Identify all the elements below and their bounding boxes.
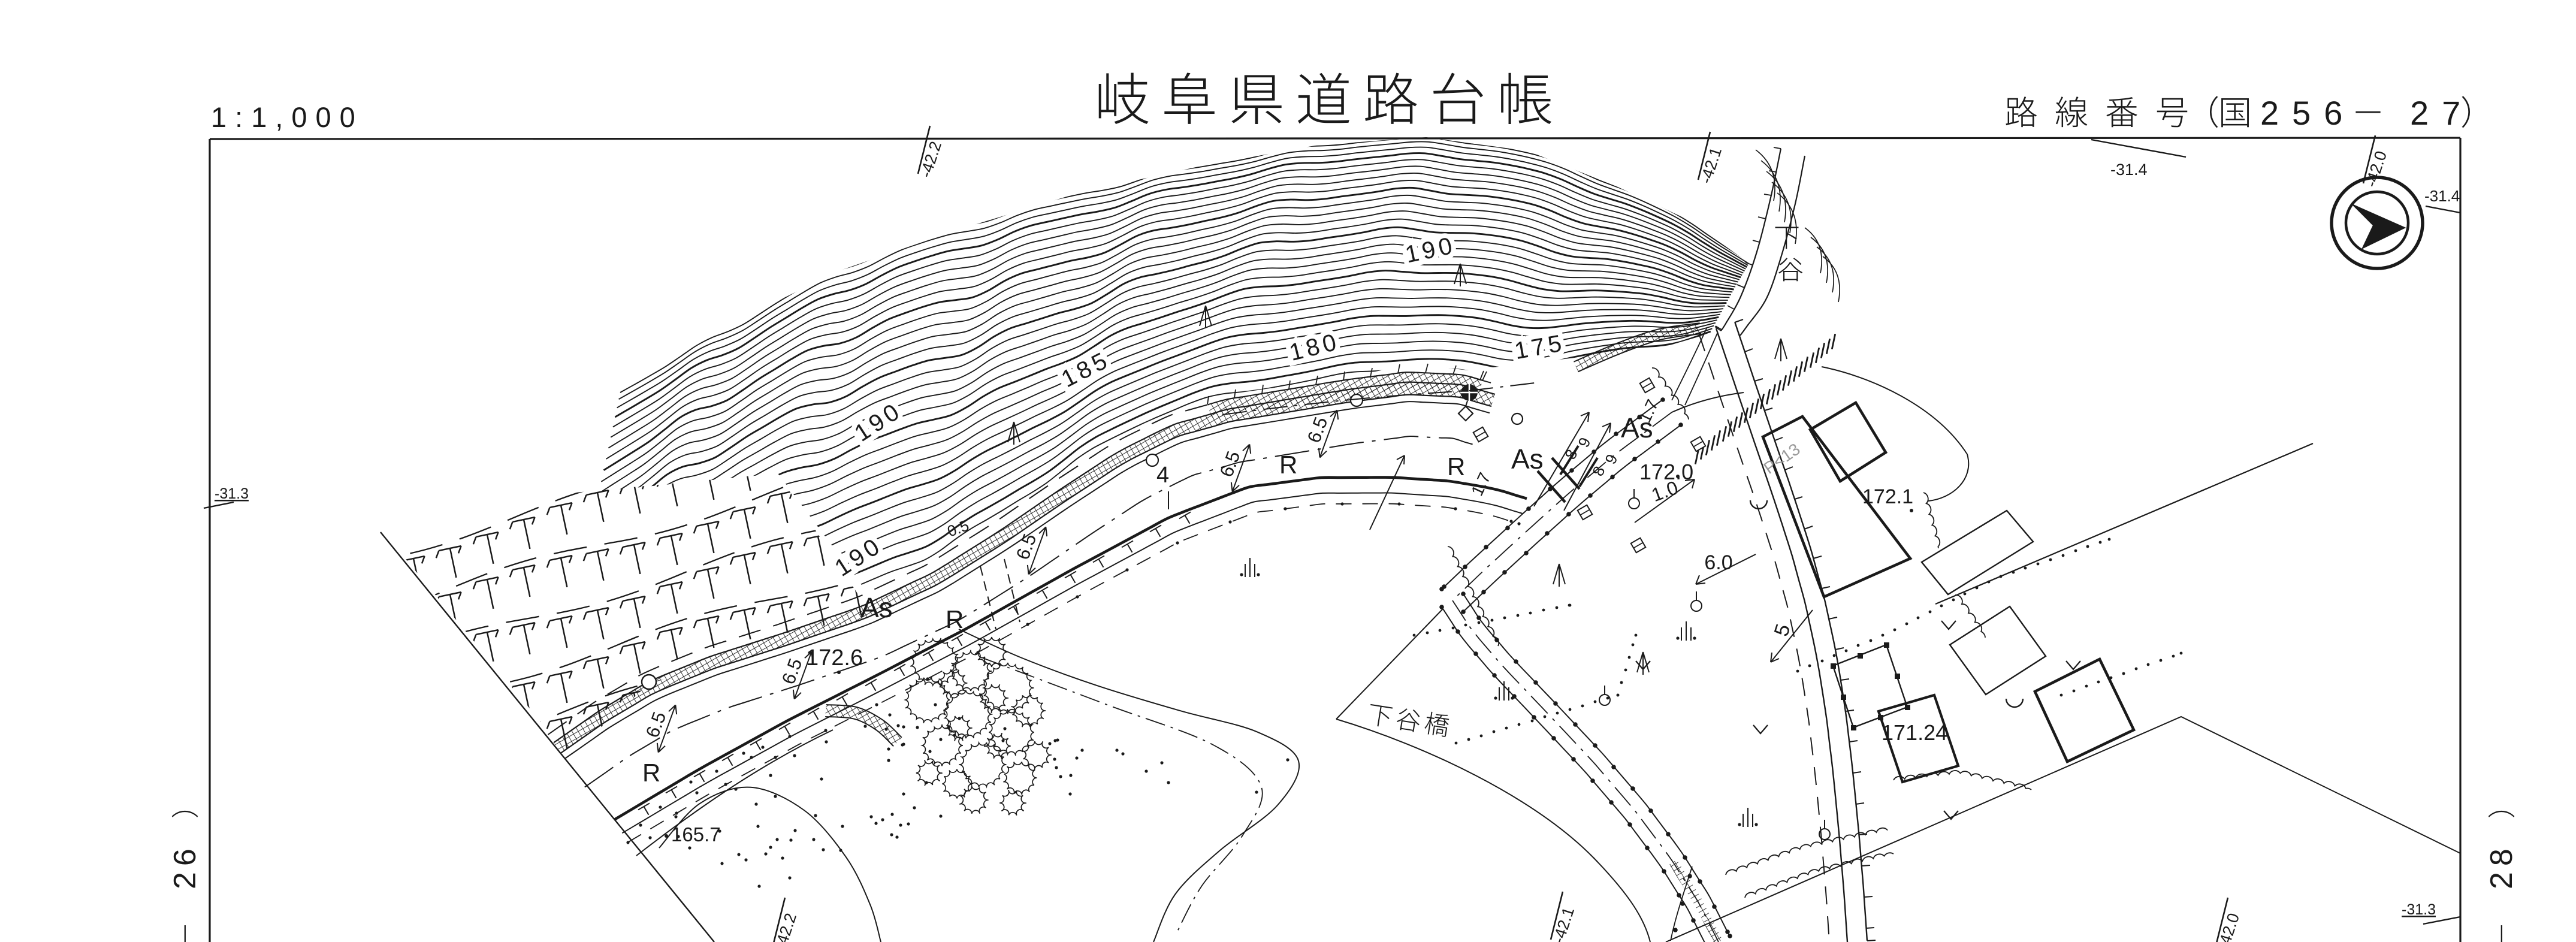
svg-text:R: R — [642, 759, 660, 787]
svg-text:As: As — [1511, 443, 1544, 475]
svg-text:4: 4 — [1156, 463, 1169, 488]
svg-text:R: R — [946, 605, 964, 633]
svg-text:-31.4: -31.4 — [2110, 161, 2148, 179]
svg-text:172.1: 172.1 — [1862, 485, 1913, 508]
svg-text:R: R — [1279, 451, 1297, 479]
svg-text:6.0: 6.0 — [1704, 551, 1732, 574]
svg-text:-31.3: -31.3 — [215, 485, 249, 502]
svg-text:R: R — [1447, 452, 1465, 481]
svg-text:165.7: 165.7 — [671, 823, 721, 846]
svg-text:28: 28 — [2484, 843, 2519, 889]
svg-text:256: 256 — [2260, 94, 2355, 132]
svg-text:26: 26 — [168, 843, 203, 889]
svg-text:1:1,000: 1:1,000 — [211, 101, 364, 133]
svg-text:As: As — [860, 592, 893, 623]
svg-text:-31.3: -31.3 — [2402, 901, 2436, 918]
svg-text:171.24: 171.24 — [1882, 720, 1947, 745]
svg-text:172.6: 172.6 — [806, 645, 863, 671]
svg-text:-31.4: -31.4 — [2424, 187, 2460, 205]
